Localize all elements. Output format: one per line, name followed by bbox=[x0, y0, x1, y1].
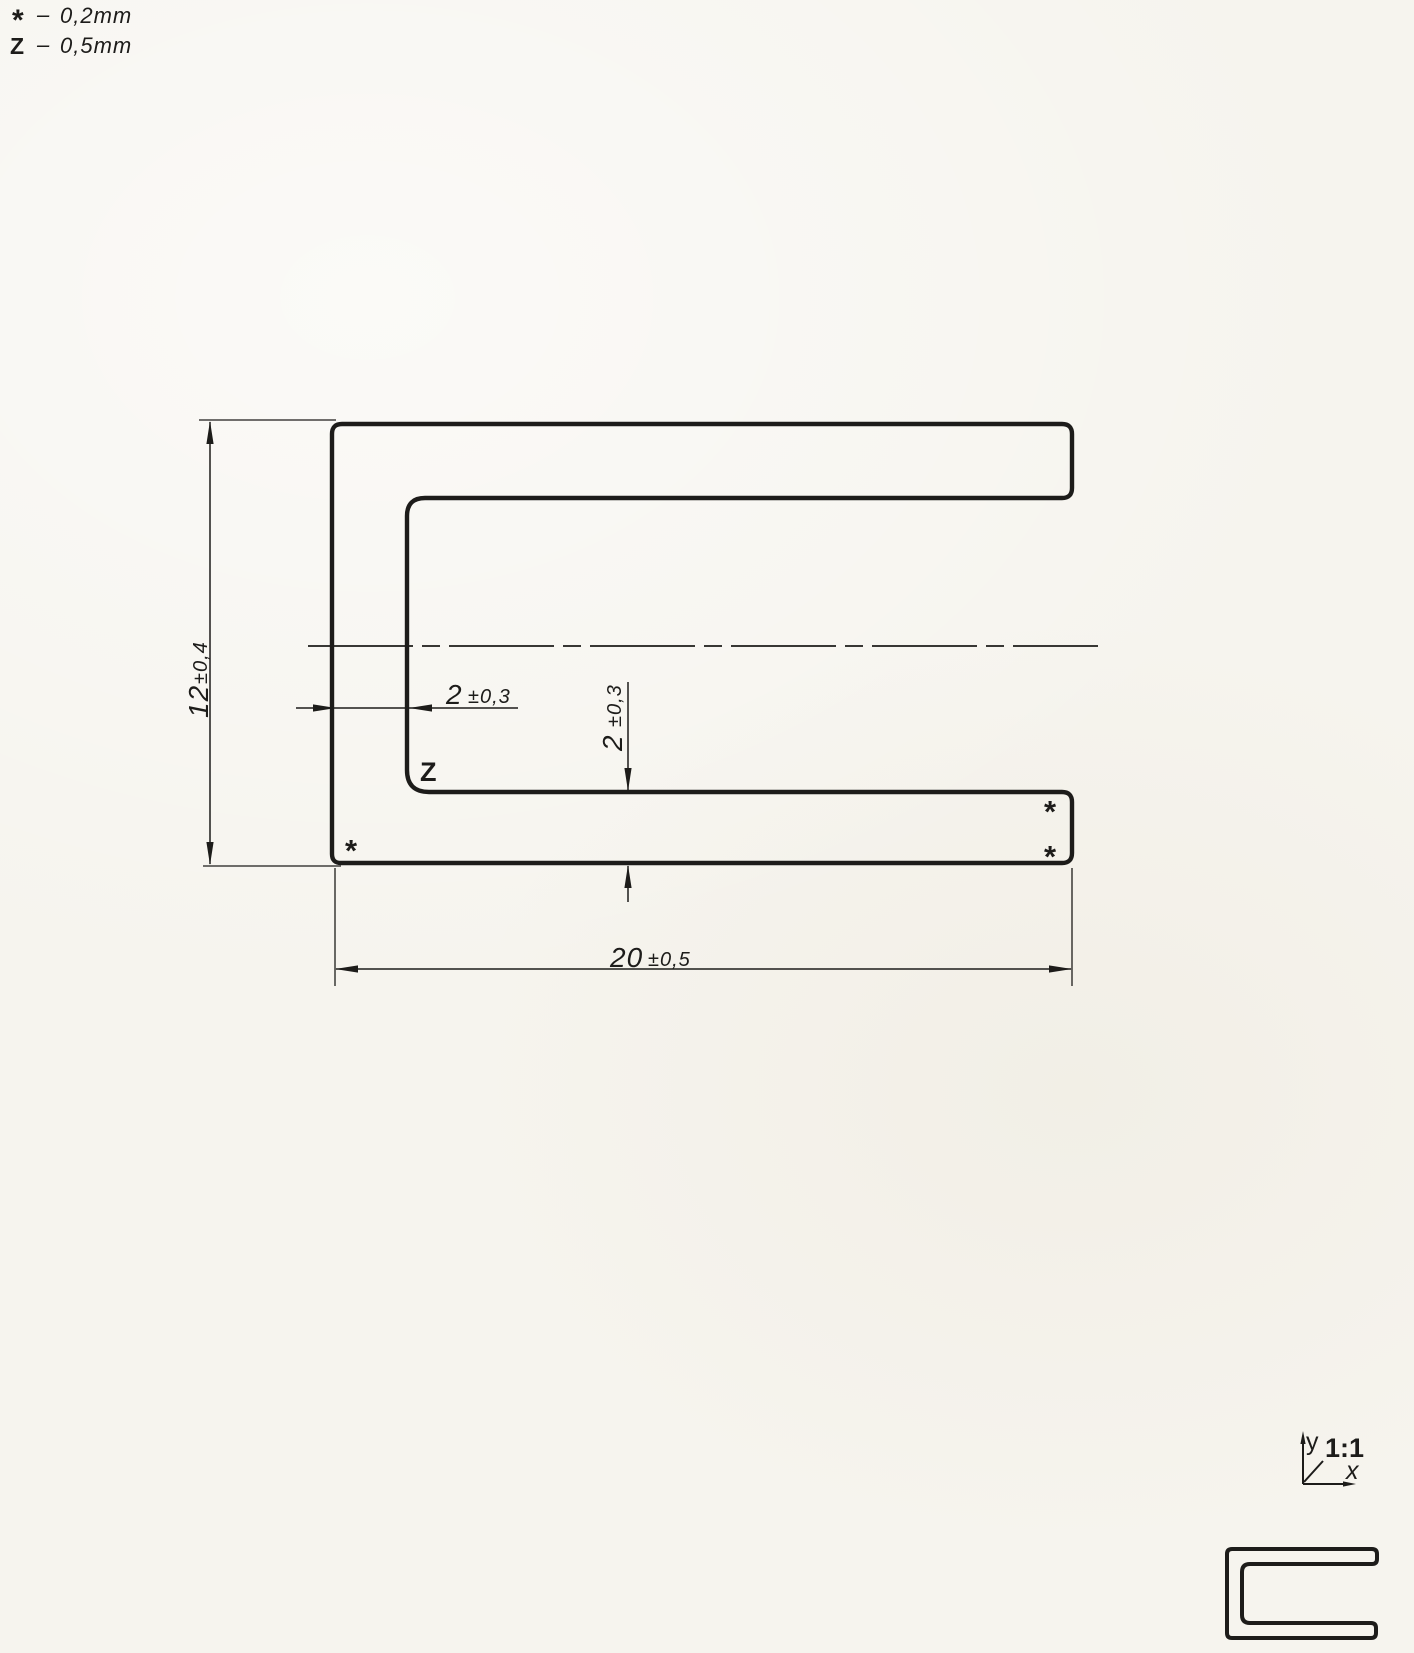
dim-height-value: 12 bbox=[183, 685, 214, 718]
dim-wall-tolerance: ±0,3 bbox=[468, 686, 511, 708]
surface-mark-right-bottom: * bbox=[1044, 839, 1057, 874]
y-axis-label: y bbox=[1306, 1428, 1319, 1456]
dim-flange-arrow-up bbox=[624, 865, 631, 888]
drawing-sheet: * – 0,2mm Z – 0,5mm 12 ±0,4 2 ±0,3 bbox=[0, 0, 1414, 1653]
legend-z-symbol: Z bbox=[10, 33, 24, 59]
tolerance-legend: * – 0,2mm Z – 0,5mm bbox=[10, 2, 132, 59]
dim-width: 20 ±0,5 bbox=[335, 868, 1072, 986]
dim-wall-arrow-left bbox=[409, 704, 432, 711]
profile-outline bbox=[332, 424, 1072, 863]
technical-drawing-canvas: * – 0,2mm Z – 0,5mm 12 ±0,4 2 ±0,3 bbox=[0, 0, 1414, 1653]
profile-thumbnail bbox=[1227, 1549, 1377, 1638]
dim-height-tolerance: ±0,4 bbox=[190, 641, 212, 684]
dim-wall-value: 2 bbox=[445, 679, 463, 710]
legend-z-separator: – bbox=[36, 32, 50, 57]
legend-star-value: 0,2mm bbox=[60, 3, 132, 28]
dim-width-arrow-left bbox=[335, 965, 358, 972]
dim-flange-tolerance: ±0,3 bbox=[604, 684, 626, 727]
corner-z-label: Z bbox=[420, 757, 437, 787]
surface-mark-right-top: * bbox=[1044, 794, 1057, 829]
dim-width-tolerance: ±0,5 bbox=[648, 949, 691, 971]
surface-mark-left: * bbox=[345, 833, 358, 868]
y-axis-arrow-icon bbox=[1300, 1431, 1305, 1444]
dim-height-arrow-up bbox=[206, 421, 213, 444]
legend-z-value: 0,5mm bbox=[60, 33, 132, 58]
dim-flange-value: 2 bbox=[597, 734, 628, 752]
dim-width-arrow-right bbox=[1049, 965, 1072, 972]
dim-height-arrow-down bbox=[206, 842, 213, 865]
axis-diagonal-tick bbox=[1304, 1461, 1323, 1482]
dim-height: 12 ±0,4 bbox=[183, 420, 341, 866]
x-axis-label: x bbox=[1345, 1457, 1360, 1485]
coordinate-system: y 1:1 x bbox=[1300, 1428, 1364, 1487]
legend-star-separator: – bbox=[36, 2, 50, 27]
dim-flange-arrow-down bbox=[624, 768, 631, 791]
dim-width-value: 20 bbox=[609, 942, 643, 973]
